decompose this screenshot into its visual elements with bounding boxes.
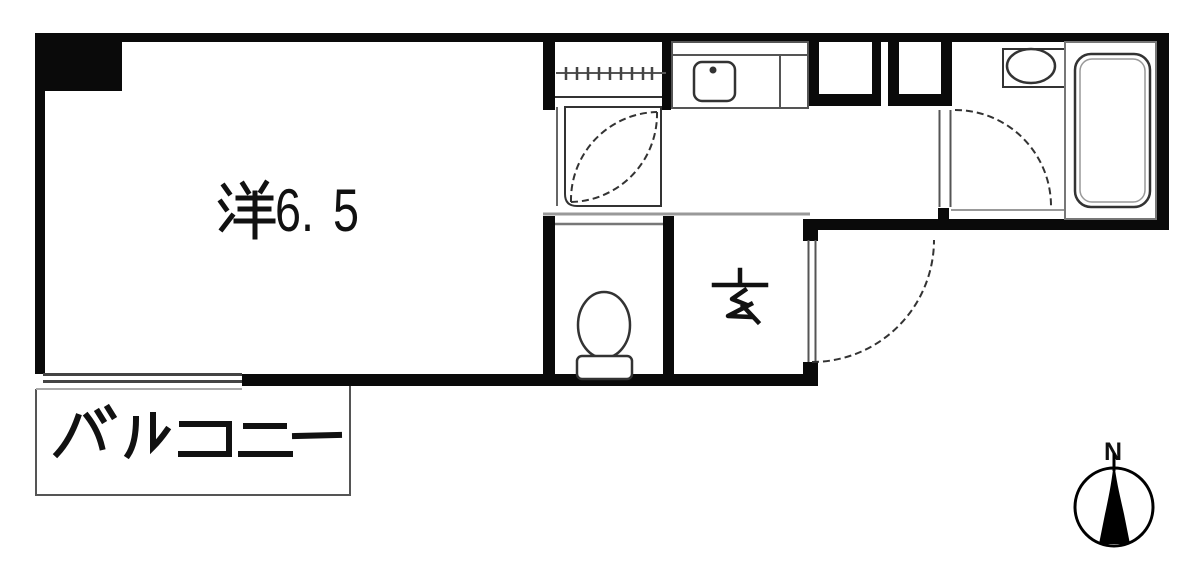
svg-text:5: 5	[333, 177, 359, 244]
svg-text:6.: 6.	[275, 177, 314, 244]
